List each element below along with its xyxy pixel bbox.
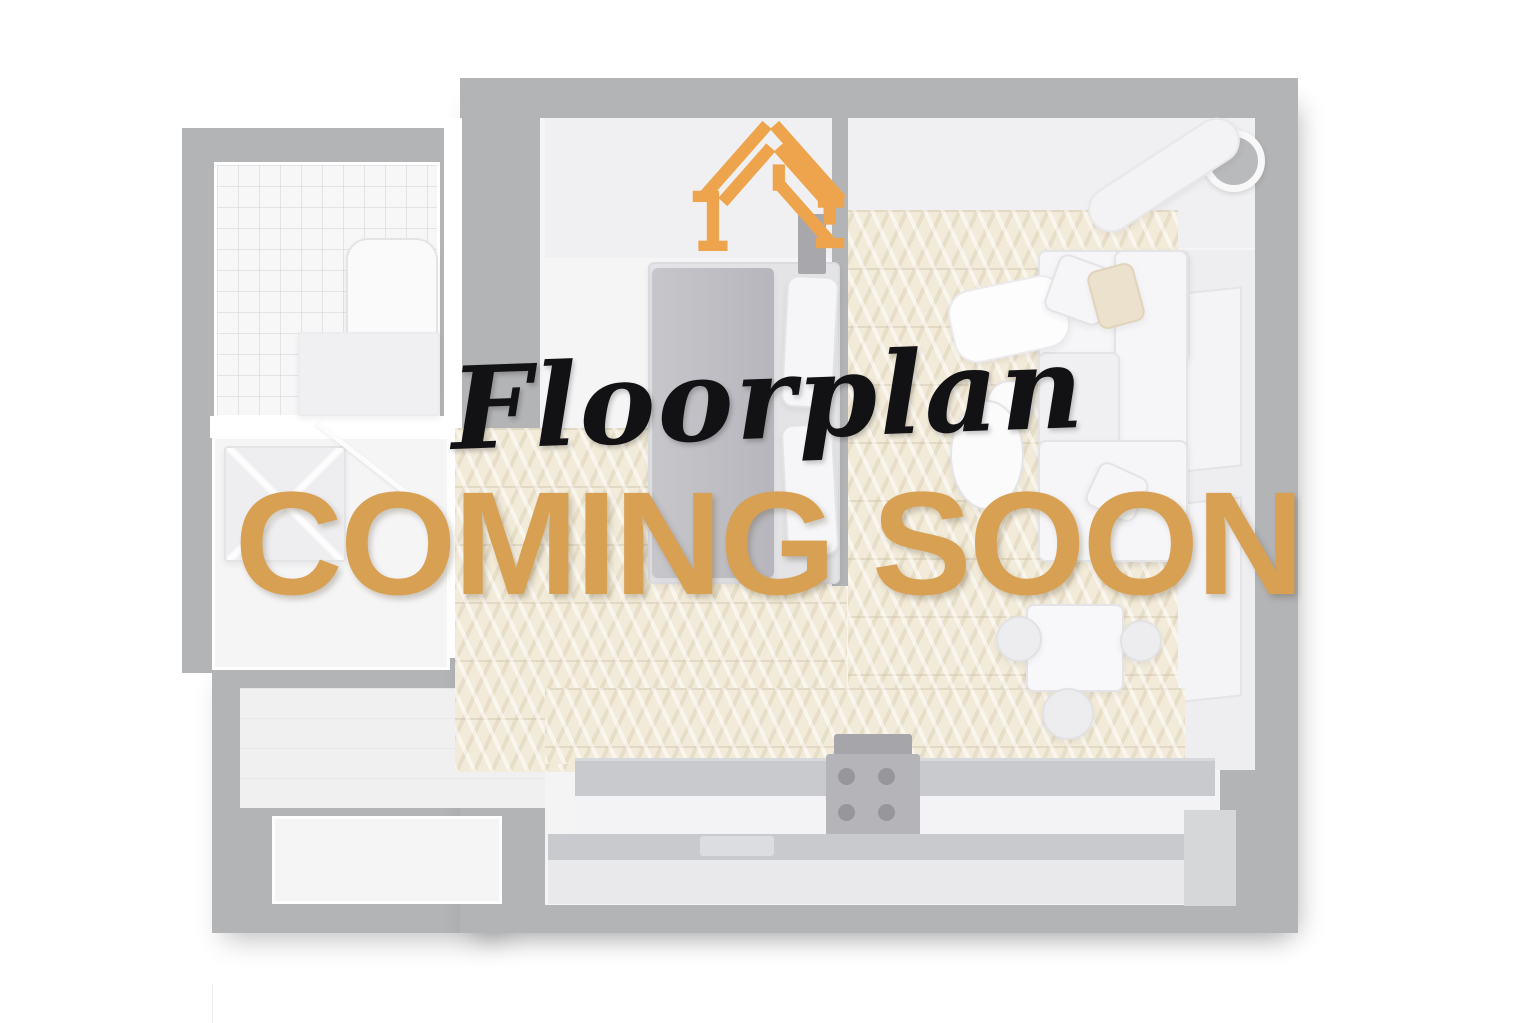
dining-chair [1042, 688, 1094, 740]
edge-artifact-line [212, 984, 213, 1023]
stove-cooktop [826, 754, 920, 840]
stove-burner [878, 804, 895, 821]
coming-soon-title: COMING SOON [0, 470, 1536, 617]
floorplan-placeholder-image: Floorplan COMING SOON [0, 0, 1536, 1023]
stove-burner [838, 768, 855, 785]
kitchen-island-countertop [548, 834, 1224, 860]
kitchen-counter-step [1184, 810, 1236, 906]
house-frame-logo-icon [688, 112, 848, 262]
stove-burner [838, 804, 855, 821]
dining-chair [1120, 620, 1162, 662]
kitchen-sink [700, 836, 774, 856]
stove-burner [878, 768, 895, 785]
entry-room [272, 816, 502, 904]
kitchen-island-front [548, 860, 1224, 904]
